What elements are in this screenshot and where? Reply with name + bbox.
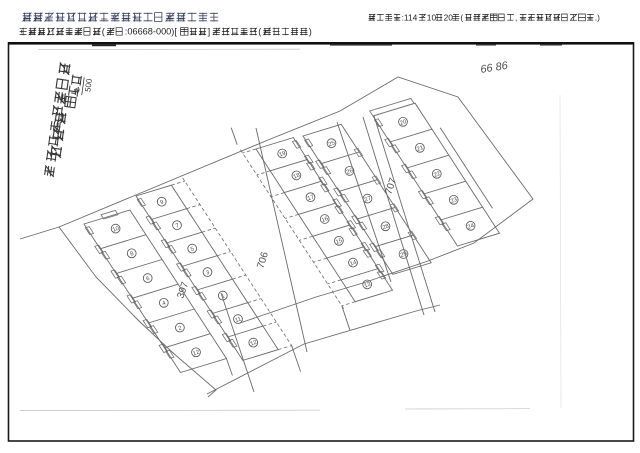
svg-text:20: 20 bbox=[444, 12, 454, 22]
svg-text:10: 10 bbox=[427, 12, 437, 22]
svg-text::06668-000)[: :06668-000)[ bbox=[125, 27, 178, 37]
svg-text:,: , bbox=[515, 12, 517, 22]
svg-text:): ) bbox=[309, 27, 312, 37]
svg-text:(: ( bbox=[258, 27, 261, 37]
svg-text:.): .) bbox=[595, 12, 600, 22]
svg-text::114: :114 bbox=[402, 12, 418, 22]
svg-text:500: 500 bbox=[83, 78, 94, 93]
svg-text:(: ( bbox=[460, 12, 463, 22]
svg-text:(: ( bbox=[102, 27, 105, 37]
svg-text:]: ] bbox=[208, 27, 211, 37]
